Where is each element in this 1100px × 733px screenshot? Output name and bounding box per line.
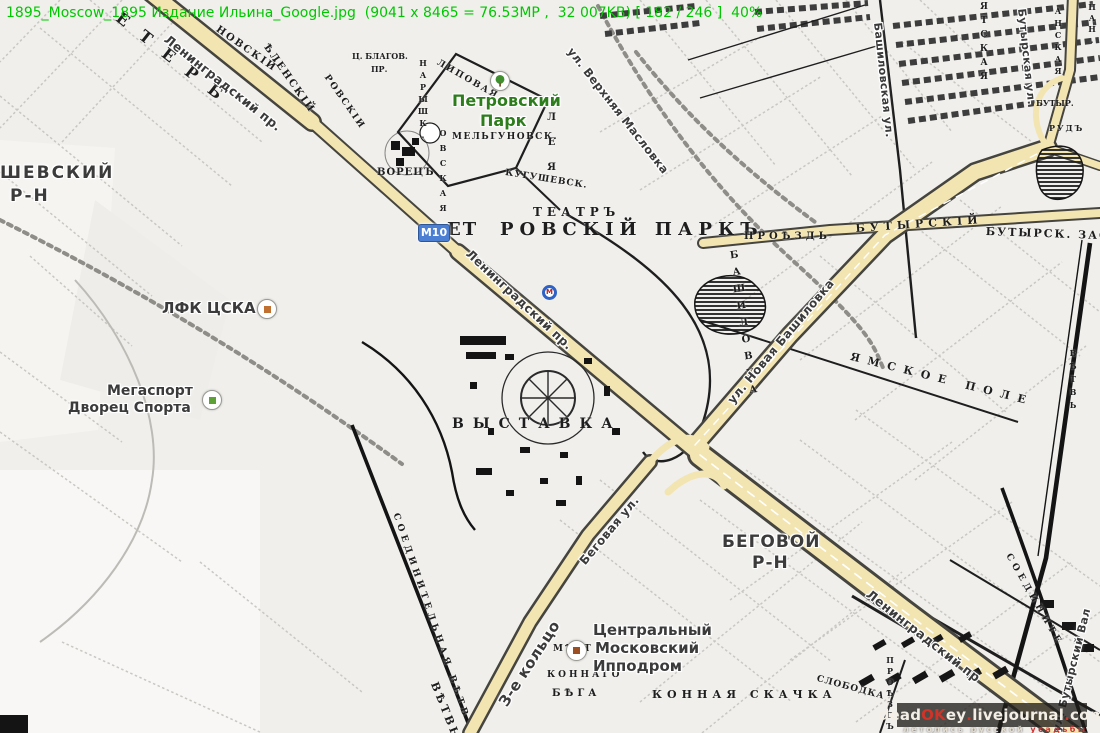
old-label-teatr: ТЕАТРЪ bbox=[533, 205, 620, 219]
poi-label-hippodrome-line2: Московский bbox=[595, 639, 699, 657]
old-label-blagov: Ц. БЛАГОВ. bbox=[352, 51, 408, 61]
metro-letter: М bbox=[546, 289, 553, 296]
district-label-khoroshevsky-line1: ШЕВСКИЙ bbox=[0, 163, 114, 183]
poi-label-lfk-cska: ЛФК ЦСКА bbox=[162, 299, 256, 317]
watermark-subtitle-part: усадьбы bbox=[1025, 725, 1087, 733]
old-label-vetv-right: ВѢТВЬ bbox=[1068, 348, 1078, 413]
watermark-subtitle: летопись русской усадьбы bbox=[903, 725, 1088, 733]
old-label-konnaya-skachka: КОННАЯ СКАЧКА bbox=[652, 688, 837, 701]
old-label-alleya: ЛЕЯ bbox=[546, 112, 557, 187]
lfk-cska-square-icon bbox=[264, 306, 271, 313]
marker-lfk-cska bbox=[257, 299, 277, 319]
old-label-butyr: БУТЫР. bbox=[1036, 98, 1074, 108]
hippodrome-square-icon bbox=[573, 647, 580, 654]
district-label-khoroshevsky-line2: Р-Н bbox=[10, 186, 50, 206]
watermark-part: OK bbox=[921, 706, 946, 724]
watermark-part: livejournal bbox=[972, 706, 1064, 724]
old-label-anskaya: АНСКАЯ bbox=[1053, 6, 1063, 78]
old-label-pr: ПР. bbox=[371, 64, 387, 74]
viewer-title: 1895_Moscow_1895 Издание Ильина_Google.j… bbox=[6, 5, 762, 21]
m10-highway-shield: М10 bbox=[418, 224, 450, 242]
marker-megasport bbox=[202, 390, 222, 410]
old-label-dvorets: ВОРЕЦЪ bbox=[377, 167, 435, 178]
old-label-melgunovsk: МЕЛЬГУНОВСК. bbox=[452, 132, 558, 142]
megasport-square-icon bbox=[209, 397, 216, 404]
old-label-naryshk: НАРЫШК. bbox=[418, 58, 428, 142]
map-canvas[interactable]: ЕТ РОВСКІЙ ПАРКЪ ТЕАТРЪ МЕЛЬГУНОВСК. КУГ… bbox=[0, 0, 1100, 733]
park-tree-marker bbox=[490, 71, 510, 91]
poi-label-megasport-line2: Дворец Спорта bbox=[68, 400, 191, 416]
old-label-prud: РУДЪ bbox=[1049, 123, 1084, 133]
old-label-petrovsky-park: РОВСКІЙ ПАРКЪ bbox=[500, 219, 764, 240]
old-label-proezd: ПРОѢЗДЬ bbox=[744, 231, 831, 242]
watermark-subtitle-part: летопись русской bbox=[903, 725, 1025, 733]
old-label-ovskaya: ОВСКАЯ bbox=[438, 128, 448, 218]
poi-label-hippodrome-line3: Ипподром bbox=[593, 657, 682, 675]
old-label-bega: БѢГА bbox=[552, 688, 600, 699]
poi-label-petrovsky-park-line1: Петровский bbox=[452, 91, 561, 110]
poi-label-hippodrome-line1: Центральный bbox=[593, 621, 712, 639]
poi-label-megasport-line1: Мегаспорт bbox=[107, 383, 193, 399]
old-label-yatskaya: ЯТСКАЯ bbox=[979, 2, 989, 86]
district-label-begovoy-line2: Р-Н bbox=[752, 553, 789, 573]
watermark-part: dead bbox=[879, 706, 922, 724]
marker-hippodrome bbox=[566, 640, 587, 661]
watermark: deadOKey.livejournal.com bbox=[897, 703, 1087, 727]
district-label-begovoy-line1: БЕГОВОЙ bbox=[722, 532, 821, 552]
watermark-part: com bbox=[1070, 706, 1100, 724]
watermark-part: ey bbox=[946, 706, 966, 724]
old-label-et: ЕТ bbox=[447, 219, 478, 240]
old-label-pan: ПАН. bbox=[1087, 2, 1097, 46]
old-label-vystavka: ВЫСТАВКА bbox=[452, 416, 622, 432]
tree-icon bbox=[493, 74, 507, 88]
metro-station-icon: М bbox=[542, 285, 557, 300]
poi-label-petrovsky-park-line2: Парк bbox=[480, 111, 527, 130]
